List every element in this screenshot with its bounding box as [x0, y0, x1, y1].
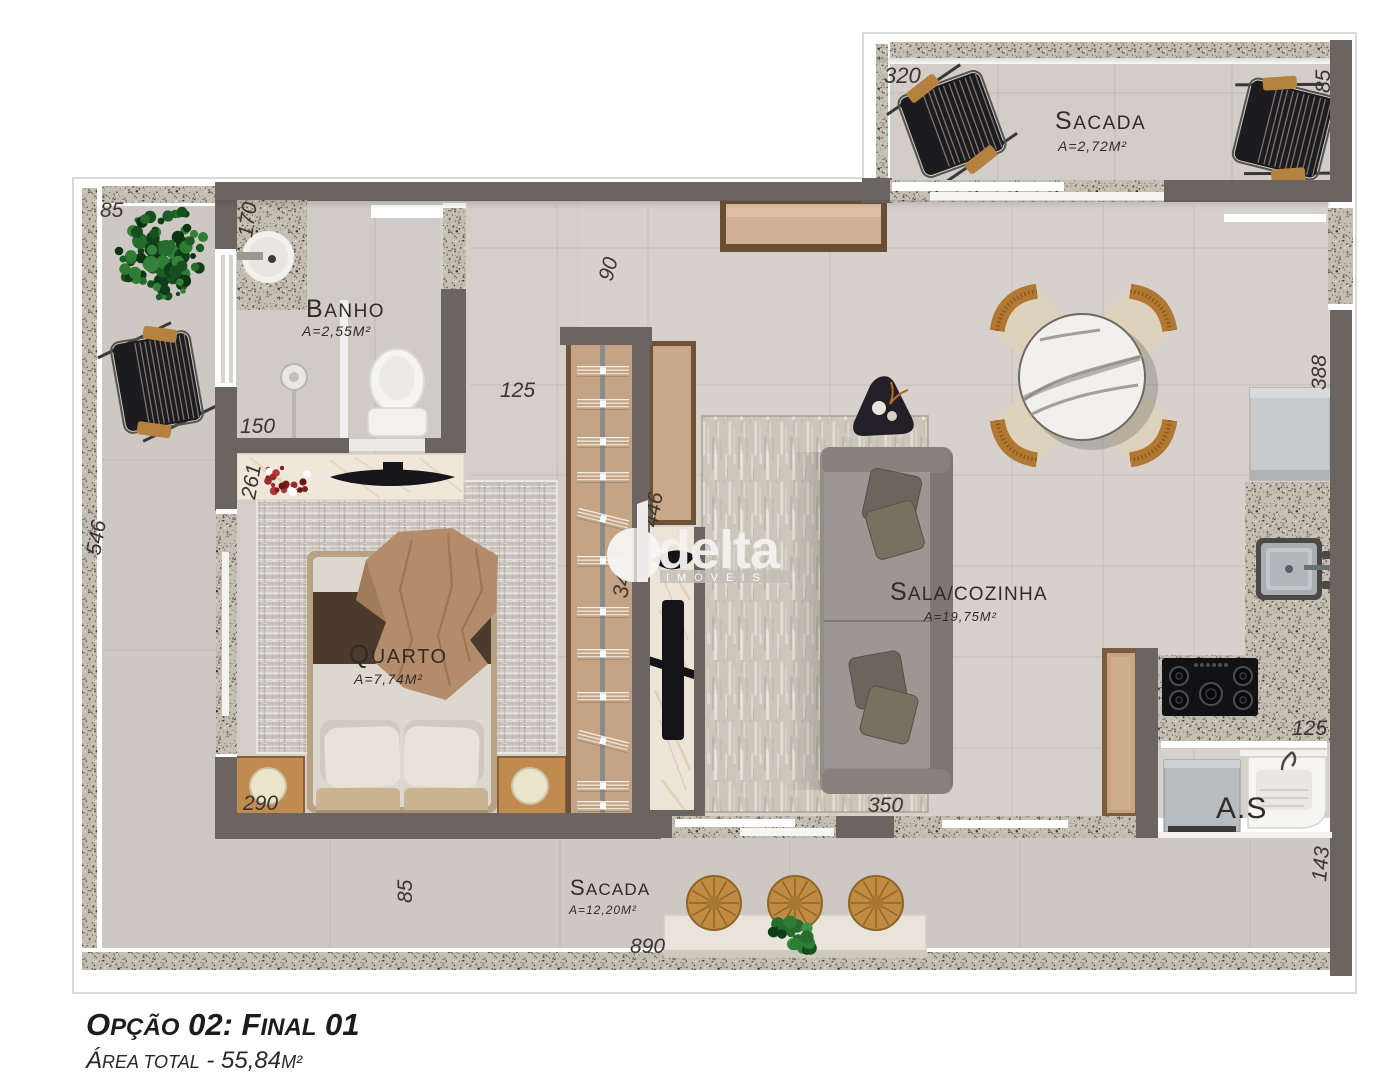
svg-text:143: 143 [1308, 845, 1334, 882]
svg-text:125: 125 [500, 379, 535, 402]
svg-text:890: 890 [630, 935, 665, 958]
svg-text:150: 150 [240, 415, 275, 438]
svg-text:A=2,72M²: A=2,72M² [1057, 138, 1127, 154]
svg-text:290: 290 [242, 792, 278, 815]
svg-text:350: 350 [868, 794, 903, 817]
svg-text:170: 170 [234, 200, 262, 238]
svg-text:85: 85 [1312, 69, 1335, 93]
svg-text:A=2,55M²: A=2,55M² [301, 323, 371, 339]
svg-text:388: 388 [1308, 355, 1331, 390]
svg-text:85: 85 [100, 199, 124, 222]
svg-text:125: 125 [1292, 717, 1327, 740]
svg-text:IMÓVEIS: IMÓVEIS [666, 571, 768, 584]
svg-text:ÁREA TOTAL - 55,84M²: ÁREA TOTAL - 55,84M² [85, 1047, 303, 1074]
svg-text:A=7,74M²: A=7,74M² [353, 671, 423, 687]
svg-text:320: 320 [884, 63, 921, 88]
svg-text:85: 85 [394, 879, 417, 903]
svg-text:A=19,75M²: A=19,75M² [923, 609, 997, 624]
svg-text:A=12,20M²: A=12,20M² [568, 903, 637, 917]
svg-text:A.S: A.S [1216, 792, 1267, 825]
